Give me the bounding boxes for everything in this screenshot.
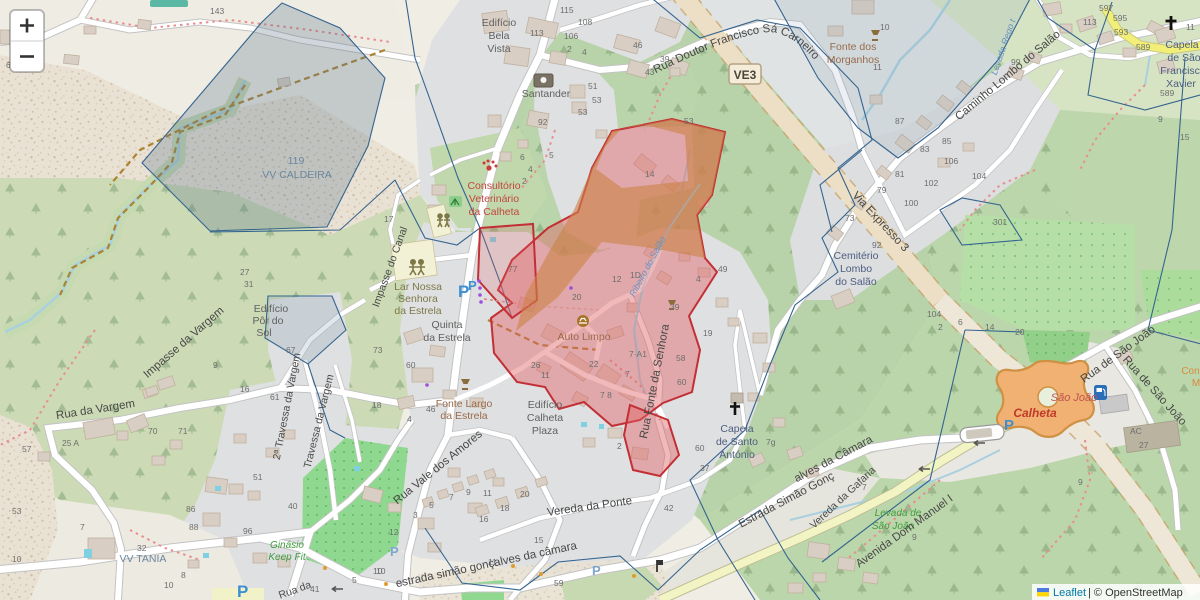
svg-text:11: 11 — [873, 62, 882, 72]
svg-text:15: 15 — [534, 535, 544, 545]
svg-text:49: 49 — [718, 264, 728, 274]
svg-text:4: 4 — [528, 164, 533, 174]
svg-text:113: 113 — [530, 28, 544, 38]
svg-text:301: 301 — [993, 217, 1007, 227]
svg-text:de Santo: de Santo — [716, 436, 758, 448]
svg-text:8: 8 — [181, 570, 186, 580]
svg-text:108: 108 — [578, 17, 592, 27]
svg-text:7: 7 — [625, 369, 630, 379]
svg-text:4: 4 — [696, 274, 701, 284]
svg-text:96: 96 — [243, 526, 253, 536]
svg-text:70: 70 — [148, 426, 158, 436]
svg-text:Bela: Bela — [488, 30, 509, 42]
svg-text:M: M — [1192, 378, 1200, 389]
svg-text:Capela: Capela — [1165, 39, 1198, 51]
svg-text:17: 17 — [384, 214, 394, 224]
svg-text:10: 10 — [373, 566, 383, 576]
svg-text:10: 10 — [164, 580, 174, 590]
svg-text:42: 42 — [664, 503, 674, 513]
svg-text:104: 104 — [972, 171, 986, 181]
svg-text:37: 37 — [700, 463, 710, 473]
svg-text:59: 59 — [554, 578, 564, 588]
svg-text:11: 11 — [1186, 22, 1195, 32]
svg-text:4: 4 — [582, 47, 587, 57]
svg-text:2: 2 — [567, 44, 572, 54]
svg-text:AC: AC — [1130, 426, 1142, 436]
svg-text:119: 119 — [288, 155, 305, 167]
svg-text:81: 81 — [895, 169, 905, 179]
svg-text:9: 9 — [1158, 114, 1163, 124]
svg-text:Consultório: Consultório — [467, 180, 520, 192]
svg-text:32: 32 — [137, 543, 147, 553]
svg-text:5: 5 — [352, 575, 357, 585]
svg-text:P: P — [468, 278, 477, 293]
svg-text:77: 77 — [508, 264, 518, 274]
svg-text:P: P — [237, 582, 248, 600]
svg-text:43: 43 — [645, 67, 655, 77]
svg-text:41: 41 — [310, 584, 320, 594]
svg-text:12: 12 — [612, 274, 622, 284]
svg-text:Lombo: Lombo — [840, 263, 872, 275]
svg-text:Capela: Capela — [720, 423, 753, 435]
svg-text:79: 79 — [877, 185, 887, 195]
svg-text:6: 6 — [958, 317, 963, 327]
svg-text:46: 46 — [633, 40, 643, 50]
svg-text:Francisco: Francisco — [1160, 65, 1200, 77]
svg-text:60: 60 — [695, 443, 705, 453]
svg-text:10: 10 — [880, 22, 890, 32]
svg-text:106: 106 — [564, 31, 578, 41]
svg-text:597: 597 — [1099, 3, 1113, 13]
svg-text:da Estrela: da Estrela — [423, 332, 470, 344]
svg-text:11: 11 — [541, 370, 550, 380]
svg-text:Auto Limpo: Auto Limpo — [557, 331, 610, 343]
svg-text:19: 19 — [703, 328, 713, 338]
svg-text:Fonte Largo: Fonte Largo — [436, 398, 493, 410]
svg-text:106: 106 — [944, 156, 958, 166]
svg-text:7g: 7g — [766, 437, 776, 447]
svg-text:53: 53 — [578, 107, 588, 117]
svg-text:595: 595 — [1113, 13, 1127, 23]
svg-text:Vista: Vista — [487, 43, 510, 55]
svg-text:9: 9 — [1078, 477, 1083, 487]
svg-text:143: 143 — [210, 6, 224, 16]
svg-text:115: 115 — [560, 5, 574, 15]
svg-text:Edifício: Edifício — [528, 399, 563, 411]
svg-text:46: 46 — [426, 404, 436, 414]
svg-text:2: 2 — [522, 176, 527, 186]
svg-text:Pôr do: Pôr do — [253, 315, 284, 327]
svg-text:7·A1: 7·A1 — [629, 349, 647, 359]
svg-text:83: 83 — [920, 144, 930, 154]
svg-text:88: 88 — [189, 522, 199, 532]
svg-text:5: 5 — [549, 150, 554, 160]
svg-text:100: 100 — [904, 198, 918, 208]
svg-text:12: 12 — [389, 527, 399, 537]
svg-text:10: 10 — [12, 554, 22, 564]
svg-text:39: 39 — [660, 54, 670, 64]
svg-text:57: 57 — [22, 444, 32, 454]
svg-text:67: 67 — [286, 345, 296, 355]
svg-text:71: 71 — [178, 426, 188, 436]
svg-text:16: 16 — [479, 514, 489, 524]
svg-text:São João: São João — [1051, 392, 1097, 404]
svg-text:20: 20 — [520, 489, 530, 499]
svg-text:VV CALDEIRA: VV CALDEIRA — [262, 169, 331, 181]
svg-text:40: 40 — [288, 501, 298, 511]
svg-text:7 8: 7 8 — [600, 390, 612, 400]
svg-text:P: P — [592, 563, 601, 578]
svg-text:18: 18 — [500, 503, 510, 513]
svg-text:Calheta: Calheta — [527, 412, 563, 424]
svg-text:31: 31 — [244, 279, 254, 289]
svg-text:104: 104 — [927, 309, 941, 319]
svg-text:Cons: Cons — [1181, 366, 1200, 377]
svg-text:73: 73 — [845, 213, 855, 223]
svg-text:92: 92 — [872, 240, 882, 250]
svg-text:113: 113 — [1083, 17, 1097, 27]
svg-text:60: 60 — [677, 377, 687, 387]
svg-text:589: 589 — [1136, 42, 1150, 52]
svg-text:22: 22 — [589, 359, 599, 369]
svg-text:99: 99 — [1011, 57, 1021, 67]
svg-text:Lar Nossa: Lar Nossa — [394, 281, 442, 293]
svg-text:58: 58 — [676, 353, 686, 363]
svg-text:85: 85 — [942, 136, 952, 146]
svg-text:Veterinário: Veterinário — [469, 193, 519, 205]
svg-text:Keep Fit: Keep Fit — [268, 552, 306, 563]
svg-text:53: 53 — [592, 95, 602, 105]
svg-text:14: 14 — [985, 322, 995, 332]
svg-text:20: 20 — [1015, 327, 1025, 337]
svg-text:11: 11 — [488, 557, 497, 567]
svg-text:102: 102 — [924, 178, 938, 188]
svg-text:73: 73 — [373, 345, 383, 355]
svg-text:4: 4 — [407, 414, 412, 424]
svg-text:Calheta: Calheta — [1013, 406, 1057, 420]
svg-text:25 A: 25 A — [62, 438, 79, 448]
svg-text:3: 3 — [413, 510, 418, 520]
svg-text:87: 87 — [895, 116, 905, 126]
svg-text:da Calheta: da Calheta — [469, 206, 520, 218]
svg-text:de São: de São — [1167, 52, 1200, 64]
svg-text:Ginásio: Ginásio — [270, 540, 304, 551]
svg-text:86: 86 — [186, 504, 196, 514]
svg-text:Plaza: Plaza — [532, 425, 558, 437]
svg-text:20: 20 — [572, 292, 582, 302]
svg-text:2: 2 — [617, 441, 622, 451]
svg-text:VE3: VE3 — [734, 68, 757, 82]
svg-text:P: P — [390, 544, 399, 559]
svg-text:53: 53 — [12, 506, 22, 516]
svg-text:9: 9 — [912, 532, 917, 542]
svg-text:26: 26 — [531, 360, 541, 370]
svg-text:da Estrela: da Estrela — [394, 305, 441, 317]
svg-text:Quinta: Quinta — [432, 319, 463, 331]
svg-text:11: 11 — [483, 488, 492, 498]
svg-text:1D: 1D — [630, 270, 641, 280]
svg-text:Edifício: Edifício — [482, 17, 517, 29]
svg-text:15: 15 — [1180, 132, 1190, 142]
svg-text:Edifício: Edifício — [254, 303, 289, 315]
svg-text:9: 9 — [466, 487, 471, 497]
svg-text:2: 2 — [938, 322, 943, 332]
svg-text:do Salão: do Salão — [835, 276, 877, 288]
svg-text:Sol: Sol — [256, 327, 271, 339]
svg-text:51: 51 — [253, 472, 263, 482]
svg-text:16: 16 — [240, 384, 250, 394]
svg-text:53: 53 — [684, 116, 694, 126]
svg-text:18: 18 — [372, 400, 382, 410]
svg-text:6: 6 — [520, 152, 525, 162]
svg-text:Senhora: Senhora — [398, 293, 438, 305]
svg-text:da Estrela: da Estrela — [440, 410, 487, 422]
svg-text:7: 7 — [80, 522, 85, 532]
svg-text:7: 7 — [449, 492, 454, 502]
svg-text:VV TANIA: VV TANIA — [120, 553, 167, 565]
svg-text:14: 14 — [645, 169, 655, 179]
svg-text:92: 92 — [538, 117, 548, 127]
svg-text:António: António — [719, 449, 755, 461]
svg-text:27: 27 — [240, 267, 250, 277]
svg-text:9: 9 — [213, 360, 218, 370]
svg-text:60: 60 — [406, 360, 416, 370]
svg-text:39: 39 — [670, 302, 680, 312]
svg-text:Fonte dos: Fonte dos — [830, 41, 877, 53]
svg-text:| © OpenStreetMap: | © OpenStreetMap — [1088, 587, 1183, 599]
svg-text:593: 593 — [1114, 27, 1128, 37]
svg-text:27: 27 — [1139, 440, 1149, 450]
svg-text:Leaflet: Leaflet — [1053, 587, 1086, 599]
svg-text:Santander: Santander — [522, 88, 571, 100]
svg-text:589: 589 — [1160, 88, 1174, 98]
svg-text:Cemitério: Cemitério — [834, 250, 879, 262]
svg-text:5: 5 — [429, 500, 434, 510]
svg-text:61: 61 — [270, 392, 280, 402]
svg-text:Morganhos: Morganhos — [827, 54, 880, 66]
svg-text:7: 7 — [862, 482, 867, 492]
svg-text:51: 51 — [588, 81, 598, 91]
